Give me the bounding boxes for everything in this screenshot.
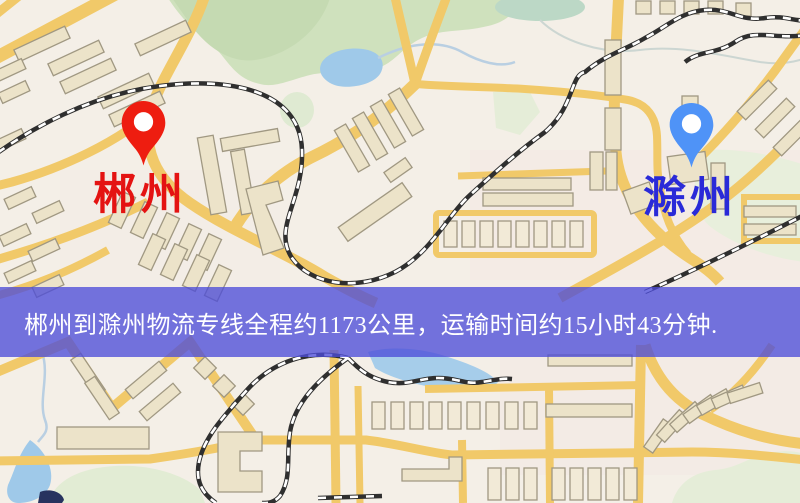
logistics-route-map: 郴州 滁州 郴州到滁州物流专线全程约1173公里，运输时间约15小时43分钟. xyxy=(0,0,800,503)
route-info-banner: 郴州到滁州物流专线全程约1173公里，运输时间约15小时43分钟. xyxy=(0,287,800,357)
map-canvas xyxy=(0,0,800,503)
origin-city-label: 郴州 xyxy=(80,173,200,218)
destination-city-label: 滁州 xyxy=(630,176,750,221)
route-info-text: 郴州到滁州物流专线全程约1173公里，运输时间约15小时43分钟. xyxy=(24,305,718,340)
